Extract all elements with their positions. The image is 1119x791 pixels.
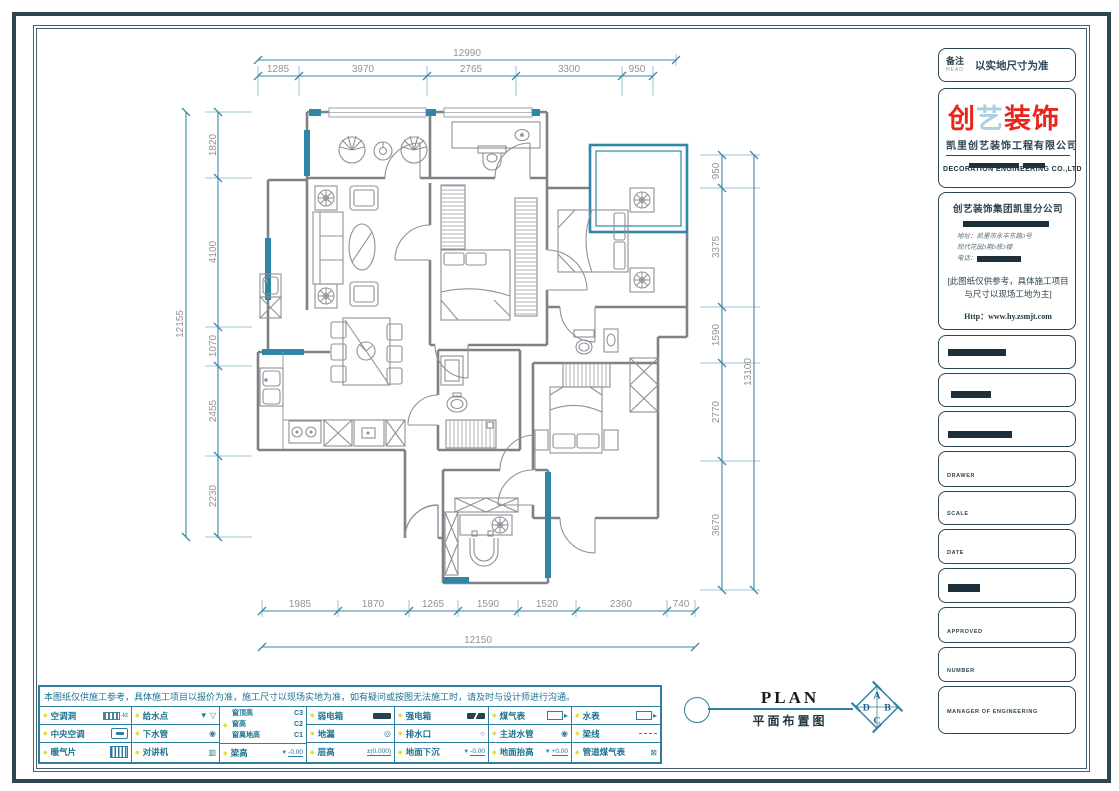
bullet-icon: ◆ bbox=[398, 712, 403, 719]
address-line-2: 现代花园3期3栋3楼 bbox=[957, 242, 1032, 253]
kitchen-cabinet-1 bbox=[324, 420, 352, 446]
vanity-counter bbox=[452, 122, 540, 148]
note-sub-label: HEAD bbox=[946, 67, 964, 73]
central-ac-icon bbox=[111, 728, 128, 739]
note-value: 以实地尺寸为准 bbox=[975, 58, 1049, 73]
legend-item: ◆弱电箱 bbox=[307, 707, 394, 725]
svg-text:1820: 1820 bbox=[208, 133, 219, 156]
svg-text:2455: 2455 bbox=[208, 399, 219, 422]
field-box-2 bbox=[938, 373, 1076, 407]
legend-item: ◆地面抬高▼+0.00 bbox=[489, 743, 571, 761]
redacted-bar bbox=[977, 256, 1021, 262]
wardrobe-bedroom2 bbox=[630, 358, 658, 412]
toilet-bottom bbox=[470, 531, 498, 566]
plan-title-en: PLAN bbox=[735, 688, 845, 708]
balcony-table bbox=[374, 142, 392, 160]
bullet-icon: ◆ bbox=[575, 712, 580, 719]
dim-right-total: 13100 bbox=[743, 358, 754, 386]
compass-c: C bbox=[873, 715, 880, 726]
bullet-icon: ◆ bbox=[43, 712, 48, 719]
redacted-bar bbox=[948, 349, 1006, 356]
address-block: 地址：凯里市永丰东路3号 现代花园3期3栋3楼 电话： bbox=[957, 231, 1032, 264]
door-bedroom-middle bbox=[395, 225, 430, 260]
door-bedroom2-south bbox=[560, 518, 595, 553]
water-outlet-icon: ○ bbox=[480, 729, 485, 738]
dim-bottom-total: 12150 bbox=[464, 635, 492, 646]
legend-col-4: ◆弱电箱 ◆地漏◎ ◆层高±(0.000) bbox=[307, 707, 395, 762]
field-box-manager: MANAGER OF ENGINEERING bbox=[938, 686, 1076, 734]
pipe-gas-meter-icon: ⊠ bbox=[650, 748, 657, 757]
website: Http：www.hy.zsmjt.com bbox=[949, 311, 1067, 322]
bullet-icon: ◆ bbox=[223, 722, 228, 729]
bullet-icon: ◆ bbox=[398, 749, 403, 756]
bed-bedroom2 bbox=[550, 387, 602, 453]
bullet-icon: ◆ bbox=[310, 712, 315, 719]
construction-disclaimer: 本图纸仅供施工参考，具体施工项目以报价为准，施工尺寸以现场实地为准，如有疑问或按… bbox=[40, 687, 660, 707]
bullet-icon: ◆ bbox=[135, 730, 140, 737]
armchair-1 bbox=[350, 186, 378, 210]
svg-text:3300: 3300 bbox=[558, 64, 581, 75]
bullet-icon: ◆ bbox=[398, 730, 403, 737]
legend-item: ◆梁高▼-0.00 bbox=[220, 744, 306, 762]
beam-line-icon bbox=[639, 733, 657, 734]
bullet-icon: ◆ bbox=[43, 730, 48, 737]
sink-master bbox=[604, 329, 618, 352]
legend-item: ◆暖气片 bbox=[40, 743, 131, 761]
legend-item: ◆对讲机▥ bbox=[132, 743, 219, 761]
legend-item: ◆中央空调 bbox=[40, 725, 131, 743]
bed-master bbox=[558, 210, 628, 272]
redacted-bar bbox=[948, 584, 980, 592]
field-box-7 bbox=[938, 568, 1076, 603]
stove bbox=[289, 421, 321, 443]
redacted-bar bbox=[951, 391, 991, 398]
bullet-icon: ◆ bbox=[135, 712, 140, 719]
intercom-icon: ▥ bbox=[208, 748, 216, 757]
door-bedroom2 bbox=[498, 470, 533, 505]
svg-text:1520: 1520 bbox=[536, 599, 559, 610]
svg-text:950: 950 bbox=[629, 64, 646, 75]
dimension-texts: 12990 1285 3970 2765 3300 950 12155 1820… bbox=[175, 48, 754, 646]
svg-text:2360: 2360 bbox=[610, 599, 633, 610]
legend-col-2: ◆给水点▼ ▽ ◆下水管◉ ◆对讲机▥ bbox=[132, 707, 220, 762]
company-name-en: DECORATION ENGINEERING CO.,LTD bbox=[943, 166, 1073, 173]
svg-text:2230: 2230 bbox=[208, 484, 219, 507]
legend-item: ◆给水点▼ ▽ bbox=[132, 707, 219, 725]
dining-table bbox=[331, 318, 402, 385]
plan-title-circle bbox=[684, 697, 710, 723]
washing-machine bbox=[446, 420, 496, 448]
wardrobe-middle-1 bbox=[441, 185, 465, 249]
doors bbox=[385, 143, 595, 553]
floor-drain-icon: ◎ bbox=[384, 729, 391, 738]
door-master-bedroom bbox=[547, 250, 587, 290]
dim-top-total: 12990 bbox=[453, 48, 481, 59]
bullet-icon: ◆ bbox=[135, 749, 140, 756]
window-entry-right bbox=[545, 472, 551, 578]
bullet-icon: ◆ bbox=[492, 712, 497, 719]
legend-item: ◆层高±(0.000) bbox=[307, 743, 394, 761]
wardrobe-middle-2 bbox=[515, 198, 537, 316]
field-box-date: DATE bbox=[938, 529, 1076, 564]
pedestal-sink bbox=[447, 393, 467, 412]
gas-meter-icon: ▸ bbox=[547, 711, 568, 720]
plan-title-line bbox=[708, 708, 853, 710]
svg-text:3670: 3670 bbox=[711, 513, 722, 536]
legend-col-6: ◆煤气表▸ ◆主进水管◉ ◆地面抬高▼+0.00 bbox=[489, 707, 572, 762]
beam-height-icon: ▼-0.00 bbox=[281, 749, 303, 757]
compass-b: B bbox=[884, 703, 891, 714]
dim-extension-lines bbox=[205, 54, 760, 617]
window-living-left bbox=[265, 238, 271, 300]
legend-item: ◆管道煤气表⊠ bbox=[572, 743, 660, 761]
legend-item: ◆空调洞-kt bbox=[40, 707, 131, 725]
dresser-bedroom2 bbox=[563, 363, 610, 387]
field-box-number: NUMBER bbox=[938, 647, 1076, 682]
svg-text:1590: 1590 bbox=[477, 599, 500, 610]
svg-text:740: 740 bbox=[673, 599, 690, 610]
svg-text:4100: 4100 bbox=[208, 240, 219, 263]
svg-text:2765: 2765 bbox=[460, 64, 483, 75]
svg-text:3970: 3970 bbox=[352, 64, 375, 75]
mirror-cabinet bbox=[441, 356, 463, 385]
field-box-1 bbox=[938, 335, 1076, 369]
legend-item: ◆地漏◎ bbox=[307, 725, 394, 743]
legend-col-1: ◆空调洞-kt ◆中央空调 ◆暖气片 bbox=[40, 707, 132, 762]
drain-pipe-icon: ◉ bbox=[209, 729, 216, 738]
nightstand-bedroom2-2 bbox=[604, 430, 618, 450]
legend-item-window-heights: ◆ 窗顶高C3 窗高C2 窗离地高C1 bbox=[220, 707, 306, 744]
furniture bbox=[260, 122, 658, 575]
bullet-icon: ◆ bbox=[43, 749, 48, 756]
coffee-table bbox=[349, 224, 375, 270]
floor-raise-icon: ▼+0.00 bbox=[545, 748, 568, 756]
svg-text:1285: 1285 bbox=[267, 64, 290, 75]
kitchen-sink bbox=[260, 368, 283, 406]
bed-middle bbox=[441, 250, 510, 320]
bullet-icon: ◆ bbox=[492, 730, 497, 737]
door-bath-bottom bbox=[500, 435, 535, 470]
svg-text:2770: 2770 bbox=[711, 400, 722, 423]
reference-notice: [此图纸仅供参考，具体施工项目与尺寸以现场工地为主] bbox=[945, 275, 1071, 301]
svg-text:3375: 3375 bbox=[711, 235, 722, 258]
door-entry bbox=[405, 505, 438, 538]
field-box-approved: APPROVED bbox=[938, 607, 1076, 643]
utility-cabinet bbox=[260, 297, 281, 318]
legend-item: ◆梁线 bbox=[572, 725, 660, 743]
dim-left-total: 12155 bbox=[175, 310, 186, 338]
legend-item: ◆地面下沉▼-0.00 bbox=[395, 743, 488, 761]
legend-item: ◆主进水管◉ bbox=[489, 725, 571, 743]
redacted-bar bbox=[948, 431, 1012, 438]
compass-a: A bbox=[873, 691, 881, 702]
water-meter-icon: ▸ bbox=[636, 711, 657, 720]
water-point-icon: ▼ ▽ bbox=[200, 711, 216, 720]
svg-text:1985: 1985 bbox=[289, 599, 312, 610]
floor-height-icon: ±(0.000) bbox=[367, 748, 391, 756]
branch-name: 创艺装饰集团凯里分公司 bbox=[946, 201, 1070, 215]
drawing-sheet: { "sheet": {"note_label":"备注","note_sub"… bbox=[0, 0, 1119, 791]
radiator-icon bbox=[110, 746, 128, 758]
legend-col-5: ◆强电箱 ◆排水口○ ◆地面下沉▼-0.00 bbox=[395, 707, 489, 762]
company-logo: 创艺装饰 bbox=[948, 97, 1060, 136]
balcony-chair-1 bbox=[339, 136, 365, 163]
address-line-1: 地址：凯里市永丰东路3号 bbox=[957, 231, 1032, 242]
armchair-2 bbox=[350, 282, 378, 306]
balcony-chair-2 bbox=[401, 136, 427, 163]
legend-item: ◆水表▸ bbox=[572, 707, 660, 725]
bullet-icon: ◆ bbox=[310, 730, 315, 737]
field-box-3 bbox=[938, 411, 1076, 447]
svg-text:1870: 1870 bbox=[362, 599, 385, 610]
svg-text:1070: 1070 bbox=[208, 334, 219, 357]
field-box-scale: SCALE bbox=[938, 491, 1076, 525]
compass: A B C D bbox=[848, 678, 906, 736]
floor-sink-icon: ▼-0.00 bbox=[463, 748, 485, 756]
legend-table: 本图纸仅供施工参考，具体施工项目以报价为准，施工尺寸以现场实地为准，如有疑问或按… bbox=[38, 685, 662, 764]
company-box: 创艺装饰 凯里创艺装饰工程有限公司 DECORATION ENGINEERING… bbox=[938, 88, 1076, 188]
door-middle-bath bbox=[408, 395, 438, 425]
legend-item: ◆排水口○ bbox=[395, 725, 488, 743]
window-balcony-left bbox=[304, 130, 310, 176]
legend-item: ◆下水管◉ bbox=[132, 725, 219, 743]
legend-col-3: ◆ 窗顶高C3 窗高C2 窗离地高C1 ◆梁高▼-0.00 bbox=[220, 707, 307, 762]
note-box: 备注 HEAD 以实地尺寸为准 bbox=[938, 48, 1076, 82]
compass-d: D bbox=[863, 703, 870, 714]
legend-item: ◆强电箱 bbox=[395, 707, 488, 725]
phone-line: 电话： bbox=[957, 253, 1032, 264]
info-box: 创艺装饰集团凯里分公司 地址：凯里市永丰东路3号 现代花园3期3栋3楼 电话： … bbox=[938, 192, 1076, 330]
bullet-icon: ◆ bbox=[575, 749, 580, 756]
window-bath-bottom bbox=[443, 577, 469, 583]
svg-text:950: 950 bbox=[711, 162, 722, 179]
bullet-icon: ◆ bbox=[575, 730, 580, 737]
ac-hole-icon: -kt bbox=[103, 712, 128, 720]
svg-text:1590: 1590 bbox=[711, 323, 722, 346]
field-box-drawer: DRAWER bbox=[938, 451, 1076, 487]
legend-item: ◆煤气表▸ bbox=[489, 707, 571, 725]
bullet-icon: ◆ bbox=[492, 749, 497, 756]
kitchen-cabinet-3 bbox=[386, 420, 405, 446]
nightstand-bedroom2-1 bbox=[535, 430, 548, 450]
bullet-icon: ◆ bbox=[310, 749, 315, 756]
main-water-pipe-icon: ◉ bbox=[561, 729, 568, 738]
sofa bbox=[313, 212, 343, 284]
svg-text:1265: 1265 bbox=[422, 599, 445, 610]
strong-current-box-icon bbox=[467, 713, 485, 719]
kitchen-cabinet-2 bbox=[354, 420, 384, 446]
bullet-icon: ◆ bbox=[223, 750, 228, 757]
legend-col-7: ◆水表▸ ◆梁线 ◆管道煤气表⊠ bbox=[572, 707, 660, 762]
plan-title-cn: 平面布置图 bbox=[730, 712, 850, 729]
note-label: 备注 bbox=[946, 54, 964, 67]
company-name-cn: 凯里创艺装饰工程有限公司 bbox=[946, 137, 1070, 156]
bath-bottom-cabinets bbox=[445, 498, 518, 575]
redacted-bar bbox=[963, 221, 1049, 227]
weak-current-box-icon bbox=[373, 713, 391, 719]
